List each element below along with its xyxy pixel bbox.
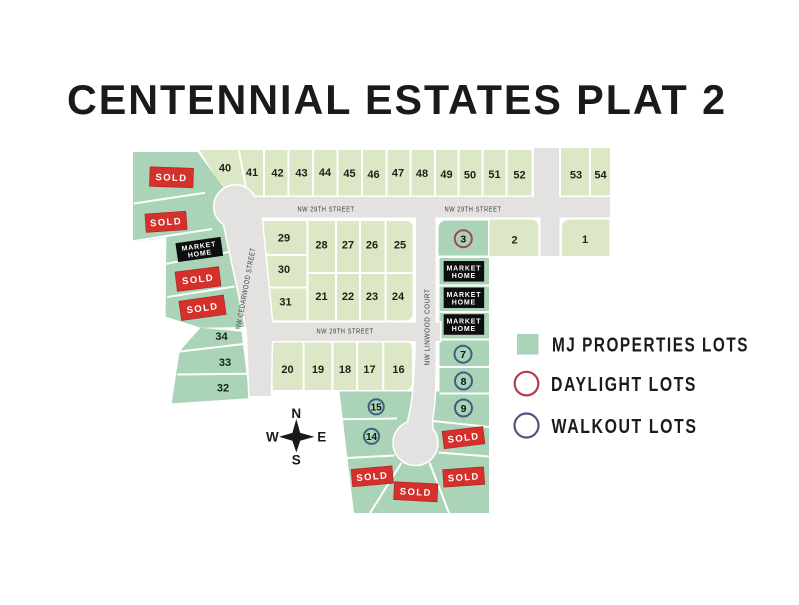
svg-text:21: 21 [315,291,327,303]
svg-text:25: 25 [394,240,406,252]
svg-text:NW LINWOOD COURT: NW LINWOOD COURT [423,289,432,366]
svg-text:30: 30 [278,264,290,276]
svg-text:MARKET: MARKET [447,292,482,299]
svg-text:18: 18 [339,364,351,376]
svg-text:28: 28 [315,240,327,252]
svg-text:MARKET: MARKET [447,265,482,272]
svg-text:51: 51 [488,169,500,181]
svg-text:50: 50 [464,170,476,182]
svg-text:19: 19 [312,364,324,376]
svg-text:46: 46 [367,169,379,181]
svg-text:SOLD: SOLD [155,172,187,184]
svg-text:MJ PROPERTIES LOTS: MJ PROPERTIES LOTS [552,335,749,357]
svg-text:15: 15 [371,403,383,414]
svg-text:49: 49 [440,169,452,181]
svg-text:33: 33 [219,357,231,369]
svg-text:34: 34 [215,331,228,343]
svg-text:9: 9 [461,403,467,415]
svg-text:SOLD: SOLD [447,471,480,484]
svg-text:23: 23 [366,291,378,303]
svg-text:WALKOUT LOTS: WALKOUT LOTS [552,416,698,438]
svg-text:32: 32 [217,383,229,395]
svg-text:40: 40 [219,163,231,175]
svg-text:DAYLIGHT LOTS: DAYLIGHT LOTS [551,374,697,396]
svg-text:NW 29TH STREET: NW 29TH STREET [298,204,355,213]
svg-text:17: 17 [363,364,375,376]
svg-text:24: 24 [392,291,405,303]
svg-text:HOME: HOME [452,273,476,280]
svg-text:HOME: HOME [452,326,476,333]
svg-text:44: 44 [319,167,332,179]
svg-text:43: 43 [295,168,307,180]
svg-text:52: 52 [513,170,525,182]
svg-text:14: 14 [366,432,378,443]
svg-text:54: 54 [594,170,607,182]
svg-text:26: 26 [366,240,378,252]
svg-text:20: 20 [281,364,293,376]
svg-text:HOME: HOME [452,299,476,306]
svg-text:41: 41 [246,167,258,179]
svg-text:SOLD: SOLD [150,216,183,229]
svg-text:NW 29TH STREET: NW 29TH STREET [445,204,502,213]
svg-text:N: N [291,406,301,421]
svg-text:27: 27 [342,240,354,252]
svg-text:SOLD: SOLD [399,486,432,499]
svg-text:S: S [292,452,301,467]
svg-text:CENTENNIAL ESTATES PLAT 2: CENTENNIAL ESTATES PLAT 2 [67,76,727,123]
svg-text:W: W [266,430,279,445]
svg-text:3: 3 [460,234,466,246]
svg-text:31: 31 [279,297,291,309]
svg-text:1: 1 [582,234,588,246]
svg-text:22: 22 [342,291,354,303]
svg-text:MARKET: MARKET [447,319,482,326]
svg-text:2: 2 [511,235,517,247]
svg-text:48: 48 [416,168,428,180]
svg-text:8: 8 [461,376,467,388]
svg-text:45: 45 [343,168,355,180]
svg-text:7: 7 [460,349,466,361]
svg-text:NW 28TH STREET: NW 28TH STREET [317,327,374,336]
svg-text:E: E [317,430,326,445]
svg-text:16: 16 [392,364,404,376]
svg-text:53: 53 [570,170,582,182]
svg-text:47: 47 [392,168,404,180]
svg-text:42: 42 [271,168,283,180]
svg-text:29: 29 [278,233,290,245]
